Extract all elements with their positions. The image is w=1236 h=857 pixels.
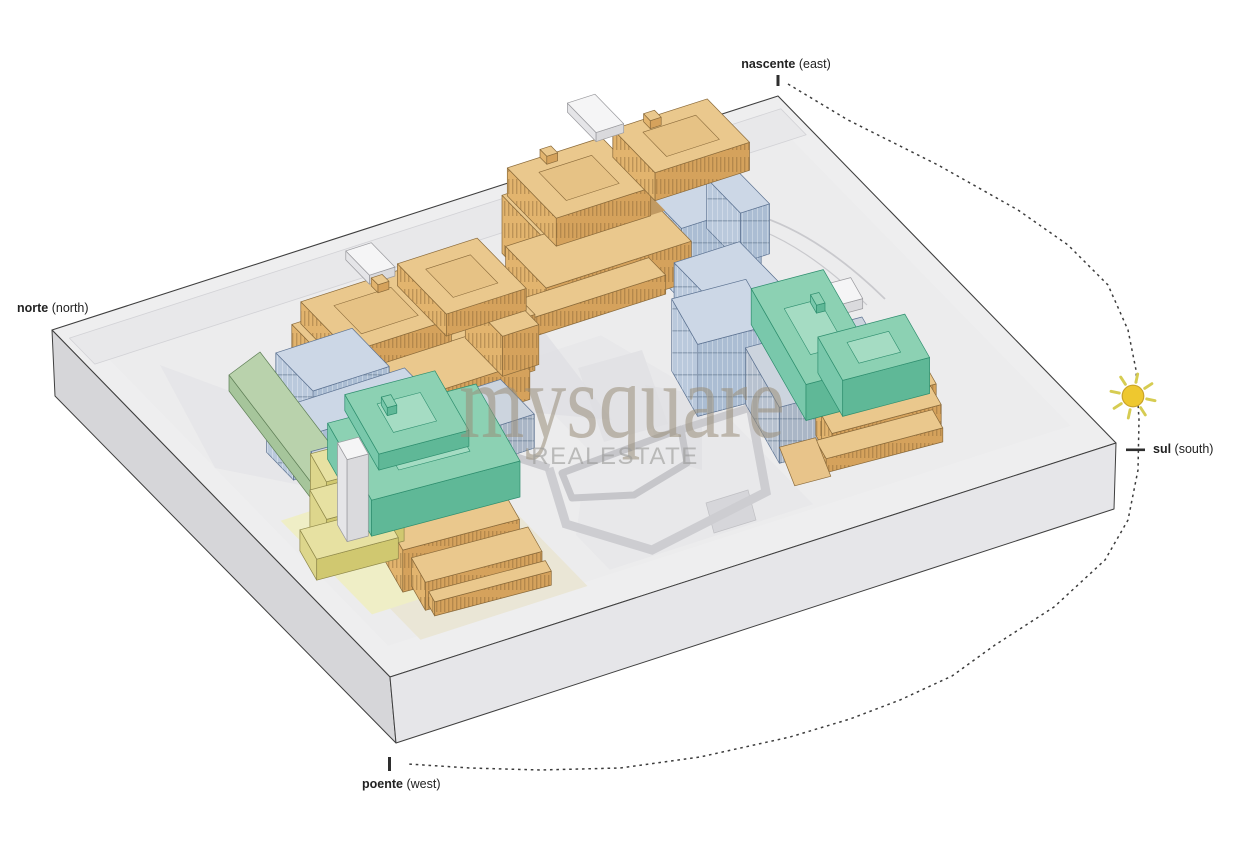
svg-text:poente (west): poente (west) [362, 777, 440, 791]
svg-text:nascente (east): nascente (east) [741, 57, 831, 71]
svg-text:norte (north): norte (north) [17, 301, 89, 315]
svg-text:sul (south): sul (south) [1153, 442, 1213, 456]
svg-text:REALESTATE: REALESTATE [531, 443, 698, 470]
